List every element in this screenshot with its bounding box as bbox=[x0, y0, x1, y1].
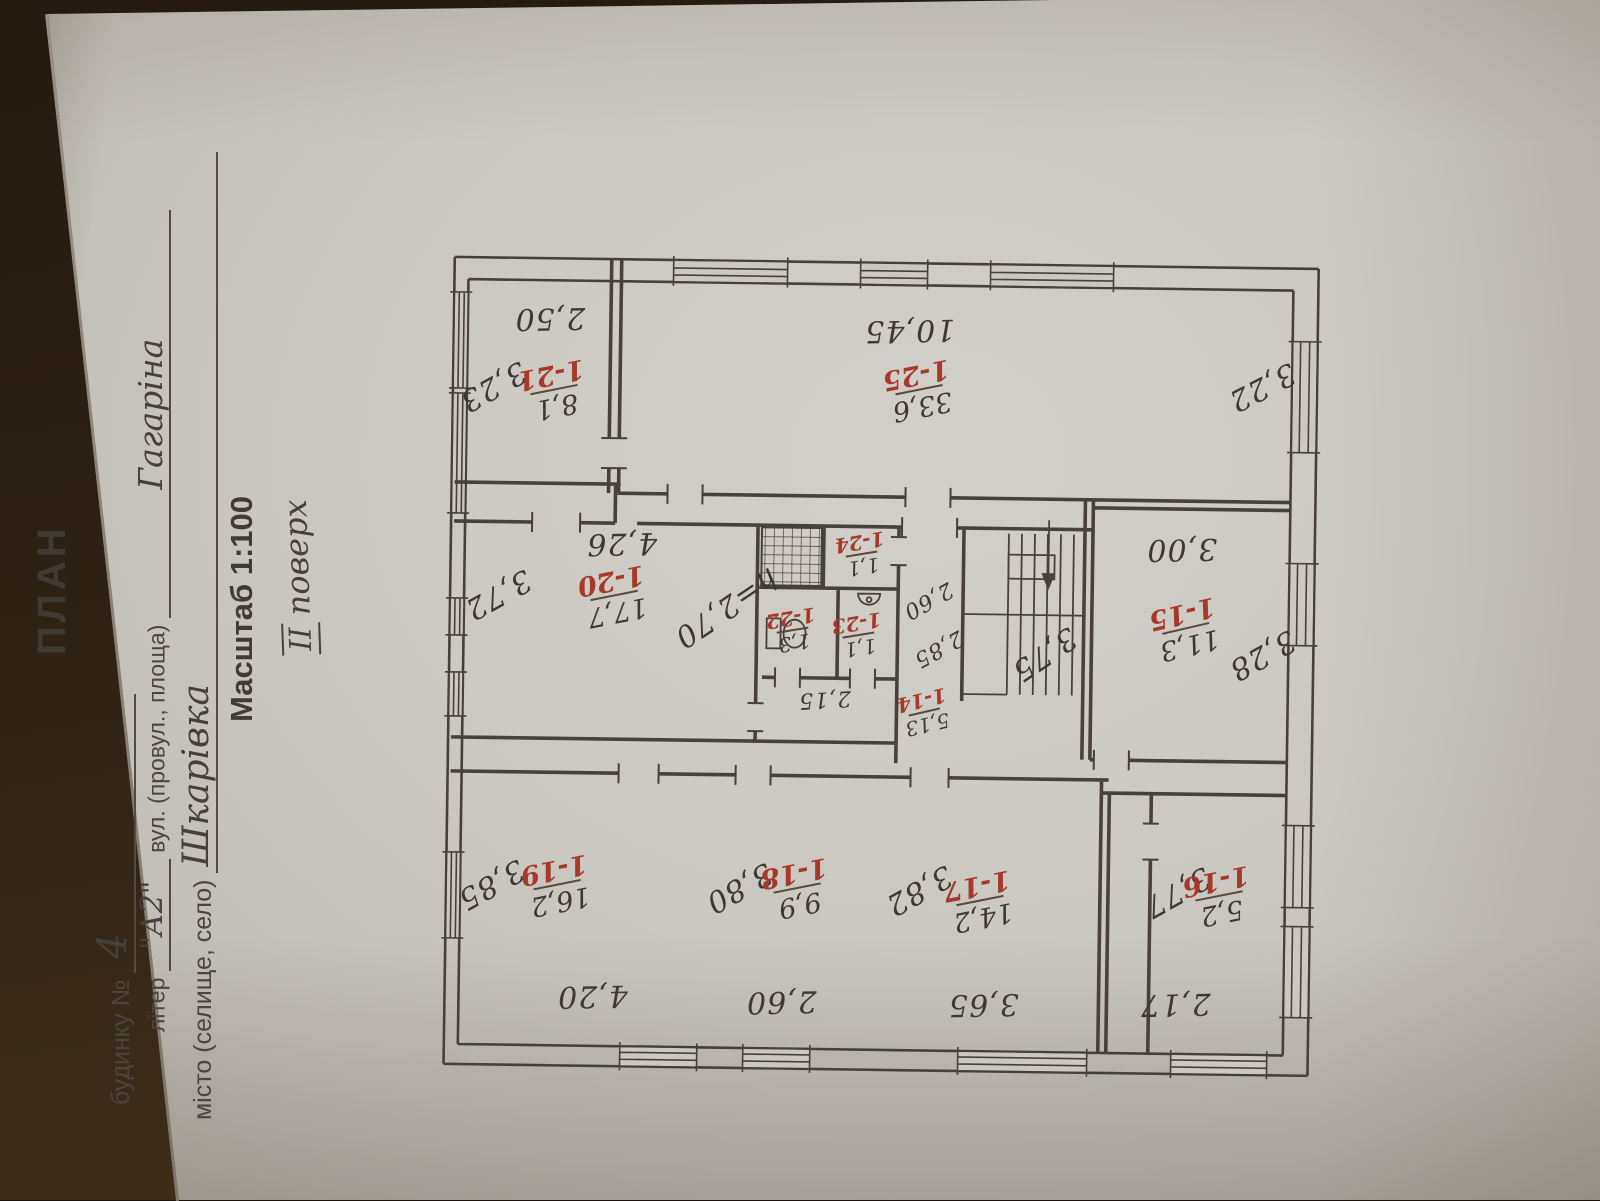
room-label-1-19: 1-19 16,2 bbox=[518, 850, 596, 921]
street-label: вул. (провул., площа) bbox=[144, 625, 170, 853]
room-label-1-25: 1-25 33,6 bbox=[880, 355, 958, 426]
dim-room18-width: 2,60 bbox=[746, 983, 818, 1019]
stairs-direction-arrow bbox=[1041, 573, 1055, 590]
sink-icon bbox=[858, 594, 880, 605]
form-line-town: місто (селище, село) Шкарівка bbox=[178, 10, 224, 1120]
building-number-value: 4 bbox=[92, 694, 136, 973]
room-label-1-22: 1-22 1,3 bbox=[764, 604, 821, 656]
town-value: Шкарівка bbox=[178, 152, 218, 873]
room-label-1-14: 1-14 5,13 bbox=[895, 685, 954, 740]
dim-room15-width: 3,00 bbox=[1146, 531, 1218, 567]
form-line-letter-street: літер "А2" вул. (провул., площа) Гагарін… bbox=[134, 10, 178, 1032]
form-title: ПЛАН bbox=[30, 10, 92, 655]
town-label: місто (селище, село) bbox=[189, 880, 217, 1120]
dim-room19-width: 4,20 bbox=[557, 978, 629, 1014]
room-label-1-23: 1-23 1,1 bbox=[830, 609, 887, 661]
floor-word: поверх bbox=[276, 499, 318, 616]
dim-room20-width: 4,26 bbox=[586, 525, 658, 561]
form-header: ПЛАН будинку № 4 літер "А2" вул. (провул… bbox=[30, 10, 320, 1200]
room-label-1-17: 1-17 14,2 bbox=[941, 866, 1019, 937]
building-label: будинку № bbox=[107, 980, 135, 1105]
room-label-1-15: 1-15 11,3 bbox=[1146, 593, 1225, 666]
letter-label: літер bbox=[144, 978, 170, 1032]
room-label-1-24: 1-24 1,1 bbox=[833, 528, 890, 580]
dim-room21-width: 2,50 bbox=[514, 300, 586, 336]
street-value: Гагаріна bbox=[134, 210, 171, 618]
dim-room17-width: 3,65 bbox=[948, 986, 1020, 1022]
floor-numeral: ІІ bbox=[281, 623, 321, 656]
dim-wc-width: 2,15 bbox=[798, 685, 852, 713]
form-line-building: будинку № 4 bbox=[92, 10, 134, 1105]
letter-value: "А2" bbox=[137, 859, 171, 971]
room-label-1-20: 1-20 17,7 bbox=[575, 560, 653, 631]
floor-plan: 2,50 3,23 10,45 3,22 4,26 3,72 h=2,70 2,… bbox=[424, 244, 1356, 1107]
dim-room16-width: 2,17 bbox=[1140, 986, 1212, 1022]
dim-room25-width: 10,45 bbox=[864, 312, 956, 349]
